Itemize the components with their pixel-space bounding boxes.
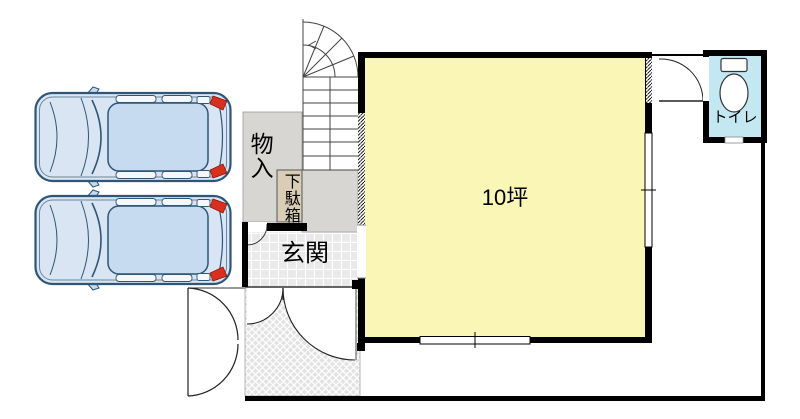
gate-swing-arc-upper bbox=[188, 288, 238, 340]
genkan-top-wall bbox=[267, 223, 307, 231]
genkan-right-wall-cap bbox=[352, 280, 360, 289]
site-boundary-right bbox=[761, 143, 765, 401]
stair-winder-treads bbox=[303, 26, 358, 77]
left-wall-hatched-opening bbox=[358, 113, 365, 225]
floor-plan: 物入 下駄箱 玄関 10坪 トイレ bbox=[0, 0, 800, 419]
parked-car-2 bbox=[36, 190, 231, 290]
parking-gate-doors bbox=[188, 288, 238, 396]
toilet-label: トイレ bbox=[709, 110, 761, 126]
toilet-bowl bbox=[720, 74, 748, 112]
shoe-cabinet-label: 下駄箱 bbox=[281, 173, 298, 224]
site-boundary-bottom bbox=[245, 396, 765, 401]
genkan-room-doorway bbox=[357, 225, 366, 278]
genkan-left-wall bbox=[242, 222, 248, 287]
staircase bbox=[303, 19, 358, 170]
room-corner-cap bbox=[357, 343, 365, 351]
toilet-window-gap bbox=[725, 137, 743, 143]
right-wall-hatched-opening bbox=[646, 58, 652, 103]
main-room-area-label: 10坪 bbox=[365, 186, 645, 209]
storage-label: 物入 bbox=[248, 132, 272, 180]
floor-plan-drawing bbox=[0, 0, 800, 419]
storage-door-opening bbox=[248, 222, 267, 232]
toilet-tank bbox=[721, 59, 747, 72]
toilet-door-swing-arc bbox=[659, 59, 703, 101]
parked-car-1 bbox=[36, 87, 231, 187]
understair-hall-floor bbox=[302, 170, 358, 232]
gate-swing-arc-lower bbox=[188, 344, 238, 396]
toilet-fixture-icon bbox=[720, 59, 748, 113]
toilet-doorway-gap bbox=[703, 57, 709, 101]
entrance-label: 玄関 bbox=[281, 241, 329, 266]
